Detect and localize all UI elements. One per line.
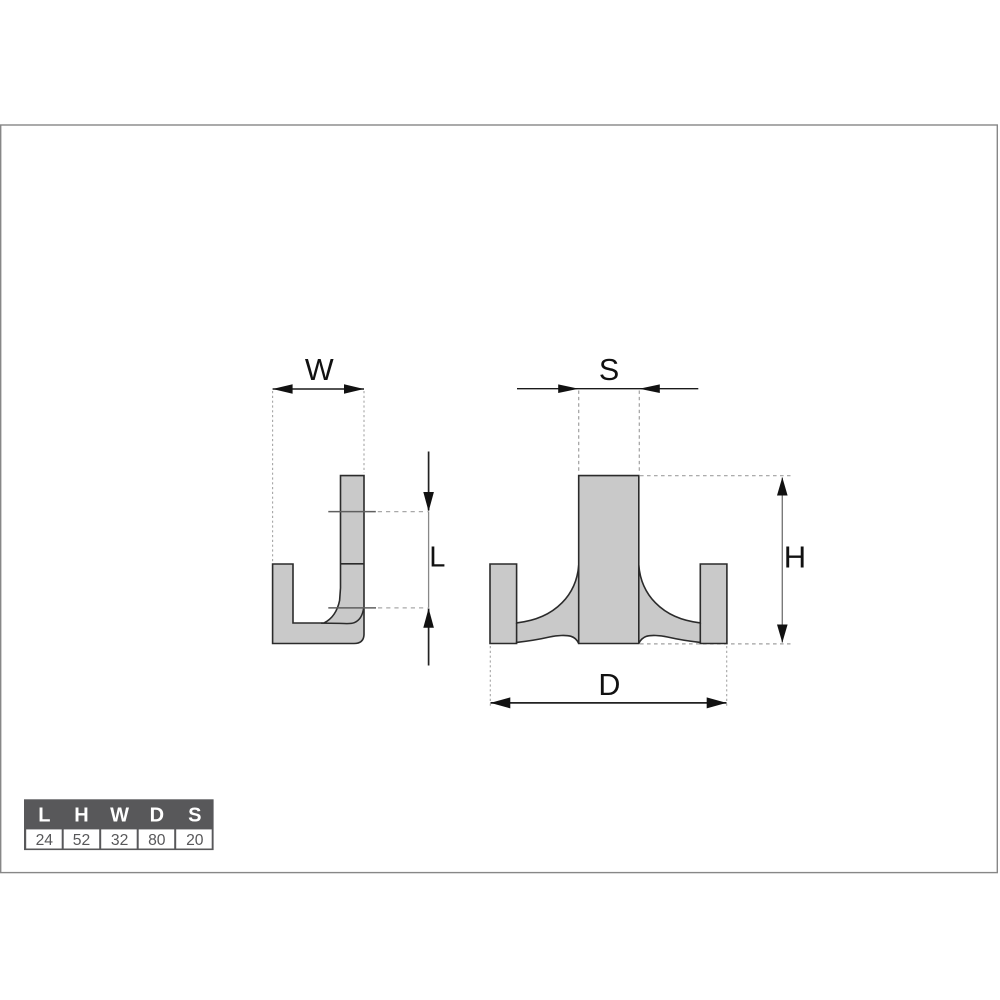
svg-text:S: S: [188, 805, 201, 827]
svg-text:H: H: [784, 539, 806, 574]
svg-text:S: S: [599, 353, 619, 387]
svg-text:52: 52: [73, 832, 90, 849]
svg-text:H: H: [74, 805, 88, 827]
svg-text:D: D: [598, 668, 620, 702]
svg-text:D: D: [150, 805, 164, 827]
svg-text:20: 20: [186, 832, 204, 849]
svg-text:80: 80: [148, 832, 166, 849]
svg-text:32: 32: [111, 832, 128, 849]
svg-text:24: 24: [36, 832, 54, 849]
svg-text:W: W: [110, 805, 129, 827]
svg-text:L: L: [429, 542, 445, 574]
svg-text:L: L: [38, 805, 50, 827]
svg-text:W: W: [305, 353, 334, 387]
